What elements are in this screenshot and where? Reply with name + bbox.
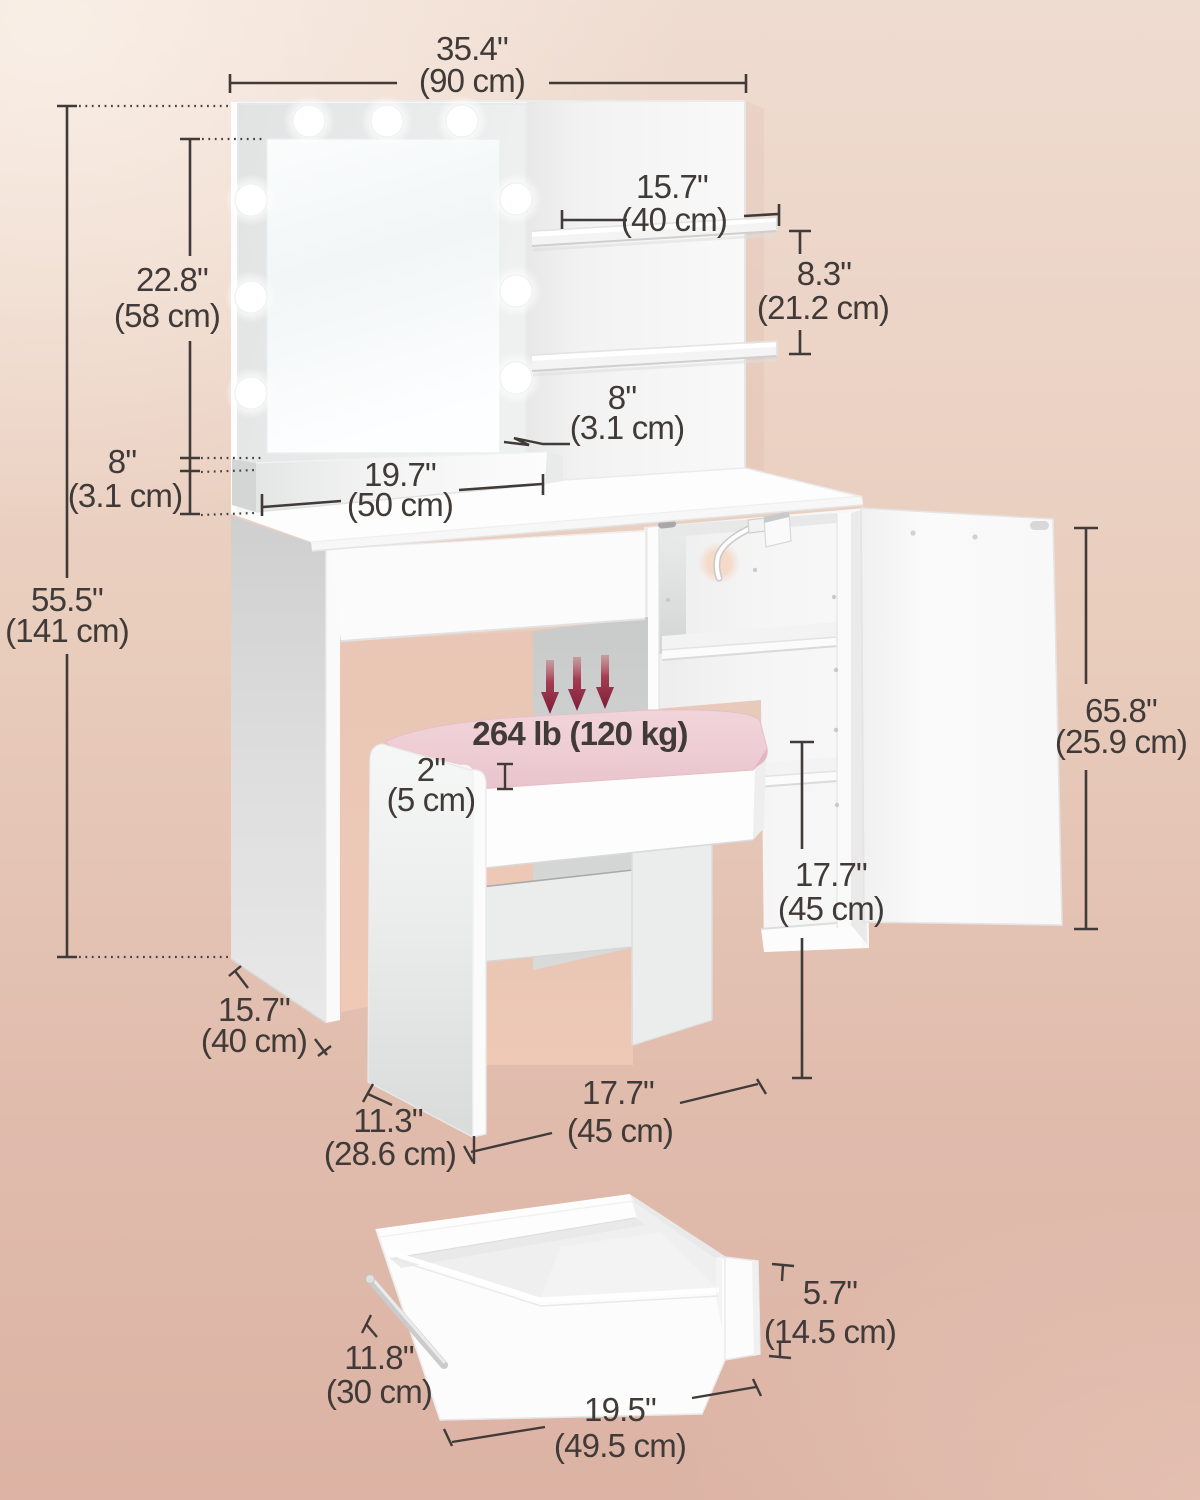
svg-text:(25.9 cm): (25.9 cm) [1055,723,1187,760]
svg-text:(28.6 cm): (28.6 cm) [324,1135,456,1172]
svg-text:11.8": 11.8" [344,1339,414,1376]
svg-text:5.7": 5.7" [803,1274,857,1311]
svg-text:(40 cm): (40 cm) [201,1022,307,1059]
svg-text:(58 cm): (58 cm) [114,297,220,334]
svg-text:(50 cm): (50 cm) [347,486,453,523]
svg-text:17.7": 17.7" [582,1074,654,1111]
svg-text:17.7": 17.7" [795,856,867,893]
svg-text:(21.2 cm): (21.2 cm) [757,289,889,326]
svg-text:(14.5 cm): (14.5 cm) [764,1313,896,1350]
svg-text:8": 8" [108,443,137,480]
svg-text:(30 cm): (30 cm) [326,1373,432,1410]
svg-text:(40 cm): (40 cm) [621,201,727,238]
svg-text:(3.1 cm): (3.1 cm) [570,409,685,446]
svg-text:(5 cm): (5 cm) [387,781,476,818]
svg-text:(45 cm): (45 cm) [567,1112,673,1149]
svg-text:19.5": 19.5" [584,1391,656,1428]
svg-text:(141 cm): (141 cm) [5,612,129,649]
svg-text:(49.5 cm): (49.5 cm) [554,1427,686,1464]
svg-text:8.3": 8.3" [797,255,851,292]
svg-text:15.7": 15.7" [636,168,708,205]
svg-text:264 lb (120 kg): 264 lb (120 kg) [472,715,687,752]
svg-text:(45 cm): (45 cm) [778,890,884,927]
svg-text:(90 cm): (90 cm) [419,62,525,99]
svg-text:(3.1 cm): (3.1 cm) [68,477,183,514]
svg-text:11.3": 11.3" [353,1102,423,1139]
svg-text:22.8": 22.8" [136,261,208,298]
